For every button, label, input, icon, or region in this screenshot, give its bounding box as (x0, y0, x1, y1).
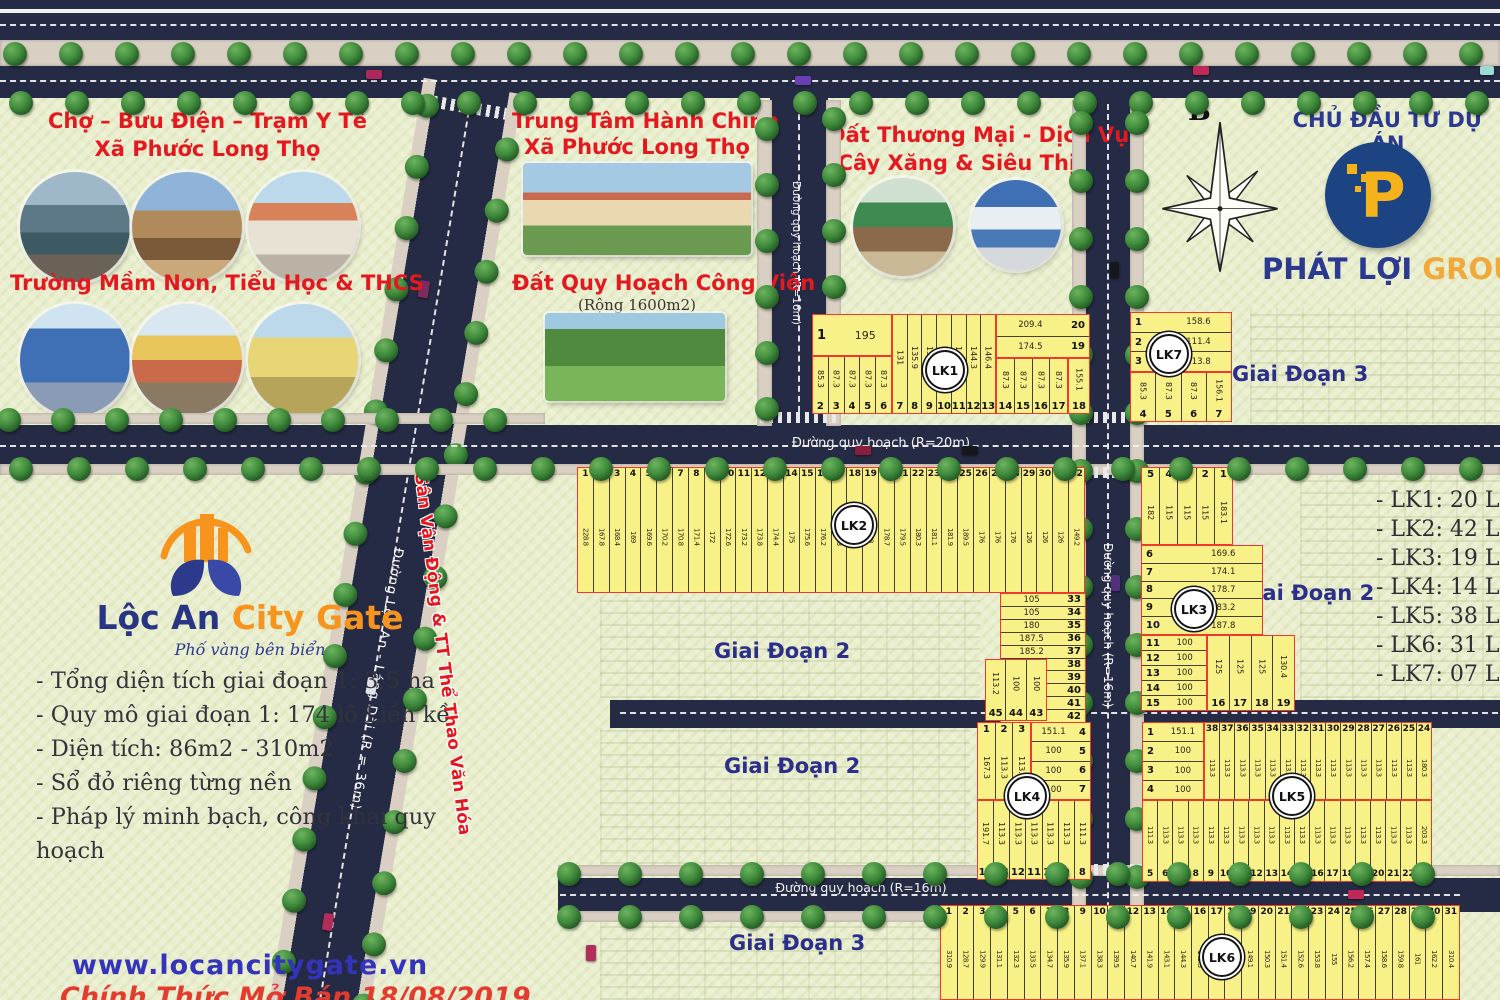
tree-icon (429, 408, 453, 432)
lot-lk7-7: 156.17 (1207, 373, 1231, 421)
block-lk2-lots: 113.2451004410043 (985, 659, 1047, 721)
photo-admin-center (523, 163, 751, 255)
commercial-title-line1: Đất Thương Mại - Dịch Vụ (828, 122, 1078, 148)
project-bullet: - Pháp lý minh bạch, công khai quy hoạch (36, 800, 506, 868)
tree-icon (452, 380, 480, 408)
tree-icon (357, 457, 381, 481)
lot-lk1-18: 155.118 (1069, 359, 1089, 413)
tree-icon (1285, 457, 1309, 481)
tree-icon (233, 91, 257, 115)
lot-lk5-3: 3100 (1143, 762, 1203, 781)
block-lk3-lots: 125161251712518130.419 (1207, 635, 1295, 711)
schools-title: Trường Mầm Non, Tiểu Học & THCS (10, 270, 405, 296)
tree-icon (731, 42, 755, 66)
tree-icon (1106, 905, 1130, 929)
photo-market (20, 172, 130, 282)
lot-lk3-16: 12516 (1208, 636, 1230, 710)
logo-pixel (1355, 186, 1361, 192)
lot-lk3-17: 12517 (1230, 636, 1252, 710)
lot-lk1-6: 87.36 (876, 357, 891, 413)
photo-clinic (248, 172, 358, 282)
lot-lk6-13: 13141.9 (1142, 906, 1159, 999)
lot-lk1-1: 1195 (813, 315, 891, 355)
lot-lk5-9: 113.39 (1204, 801, 1219, 881)
tree-icon (9, 457, 33, 481)
tree-icon (755, 229, 779, 253)
tree-icon (299, 457, 323, 481)
lot-lk3-14: 14100 (1142, 681, 1206, 696)
lot-lk2-13: 13174.4 (768, 468, 784, 592)
tree-icon (625, 91, 649, 115)
tree-icon (563, 42, 587, 66)
tree-icon (483, 197, 511, 225)
lot-lk2-12: 12173.8 (752, 468, 768, 592)
tree-icon (177, 91, 201, 115)
lot-lk5-25: 25113.3 (1402, 723, 1417, 799)
lot-lk1-2: 85.32 (813, 357, 829, 413)
photo-park (545, 313, 725, 401)
tree-icon (483, 408, 507, 432)
tree-icon (342, 520, 370, 548)
tree-icon (321, 408, 345, 432)
tree-icon (1069, 111, 1093, 135)
block-label-lk6: LK6 (1202, 937, 1242, 977)
tree-icon (647, 457, 671, 481)
logo-pixel (1347, 164, 1357, 174)
lot-lk2-16: 16176.2 (816, 468, 832, 592)
phase3-label-top: Giai Đoạn 3 (1232, 362, 1368, 386)
tree-icon (1409, 91, 1433, 115)
tree-icon (618, 862, 642, 886)
tree-icon (675, 42, 699, 66)
block-lk1-lots: 85.3287.3387.3487.3587.36 (812, 356, 892, 414)
project-logo-icon (146, 498, 266, 604)
tree-icon (1067, 42, 1091, 66)
lot-lk1-13: 146.413 (981, 315, 995, 413)
tree-icon (105, 408, 129, 432)
photo-secondary-school (248, 304, 358, 416)
block-label-lk3: LK3 (1174, 589, 1214, 629)
lot-lk5-2: 2100 (1143, 742, 1203, 761)
masterplan-poster: Đường Lộc An - Láng Dài (R = 36m) Sân Vậ… (0, 0, 1500, 1000)
admin-title-line2: Xã Phước Long Thọ (512, 134, 762, 160)
lot-lk3-19: 130.419 (1273, 636, 1294, 710)
block-lk1-lots: 209.420174.519 (996, 314, 1090, 358)
block-lk5-lots: 38113.337113.336113.335113.334113.333113… (1204, 722, 1432, 800)
tree-icon (67, 457, 91, 481)
developer-logo-letter: P (1360, 159, 1405, 232)
tree-icon (1343, 457, 1367, 481)
block-label-lk5: LK5 (1272, 776, 1312, 816)
phase2-label-lower: Giai Đoạn 2 (724, 754, 860, 778)
tree-icon (401, 91, 425, 115)
project-name-primary: Lộc An (96, 598, 231, 637)
lot-lk2-3: 3168.4 (610, 468, 626, 592)
road-centerline (560, 894, 1460, 896)
lot-lk2-6: 6170.2 (657, 468, 673, 592)
tree-icon (1459, 42, 1483, 66)
tree-icon (280, 887, 308, 915)
tree-icon (955, 42, 979, 66)
project-bullet: - Tổng diện tích giai đoạn 1: 3,5 ha (36, 664, 506, 698)
tree-icon (65, 91, 89, 115)
phase3-label-bottom: Giai Đoạn 3 (729, 931, 865, 955)
tree-icon (159, 408, 183, 432)
lot-lk2-33: 10533 (1001, 594, 1085, 607)
lot-lk1-15: 87.315 (1015, 359, 1033, 413)
tree-icon (755, 341, 779, 365)
lot-lk3-1: 1183.1 (1215, 468, 1232, 544)
photo-post-office (132, 172, 242, 282)
lot-lk3-11: 11100 (1142, 636, 1206, 651)
car-icon (586, 945, 596, 961)
lot-lk7-1: 1158.6 (1131, 313, 1231, 333)
logo-pixel (1361, 174, 1369, 182)
lot-lk4-5: 1005 (1032, 742, 1090, 761)
lot-lk5-35: 35113.3 (1250, 723, 1265, 799)
lot-lk2-36: 187.536 (1001, 633, 1085, 646)
lot-lk7-6: 87.36 (1182, 373, 1207, 421)
project-name: Lộc An City Gate (40, 598, 460, 637)
lot-lk2-23: 23181.1 (927, 468, 943, 592)
lot-lk1-19: 174.519 (997, 337, 1089, 358)
tree-icon (755, 397, 779, 421)
legend-item: - LK6: 31 Lô (1376, 631, 1500, 660)
lot-lk5-24: 24180.3 (1417, 723, 1431, 799)
lot-lk2-2: 2167.8 (594, 468, 610, 592)
lot-lk2-44: 10044 (1006, 660, 1026, 720)
road-label-r16-left: Đường quy hoạch (R=16m) (789, 178, 803, 328)
tree-icon (59, 42, 83, 66)
photo-kindergarten (20, 304, 130, 416)
tree-icon (3, 42, 27, 66)
lot-lk5-8: 113.38 (1189, 801, 1204, 881)
lot-lk2-30: 30126 (1037, 468, 1053, 592)
tree-icon (822, 107, 846, 131)
lot-lk1-5: 87.35 (860, 357, 876, 413)
tree-icon (793, 91, 817, 115)
photo-primary-school (132, 304, 242, 416)
tree-icon (1297, 91, 1321, 115)
lot-lk7-4: 85.34 (1131, 373, 1156, 421)
road-top-1 (0, 0, 1500, 40)
phase-zone-2-lower (600, 728, 970, 876)
lot-lk5-27: 27113.3 (1372, 723, 1387, 799)
tree-icon (171, 42, 195, 66)
lot-lk2-26: 26176 (974, 468, 990, 592)
phase-zone-3-bottom (600, 916, 940, 1000)
tree-icon (1289, 905, 1313, 929)
lot-lk3-12: 12100 (1142, 651, 1206, 666)
lot-lk6-2: 2128.7 (958, 906, 975, 999)
tree-icon (241, 457, 265, 481)
commercial-title-line2: (Cây Xăng & Siêu Thị) (828, 150, 1078, 176)
tree-icon (1167, 862, 1191, 886)
tree-icon (1111, 457, 1135, 481)
block-lk7-lots: 85.3487.3587.36156.17 (1130, 372, 1232, 422)
tree-icon (462, 319, 490, 347)
tree-icon (1235, 42, 1259, 66)
road-centerline (0, 80, 1500, 82)
lot-lk4-8: 111.38 (1075, 801, 1090, 879)
lot-lk1-20: 209.420 (997, 315, 1089, 337)
market-title-line2: Xã Phước Long Thọ (10, 136, 405, 162)
lot-lk6-31: 31310.4 (1443, 906, 1459, 999)
tree-icon (821, 457, 845, 481)
legend-item: - LK2: 42 Lô (1376, 515, 1500, 544)
tree-icon (619, 42, 643, 66)
lot-lk5-5: 111.35 (1143, 801, 1158, 881)
car-icon (795, 76, 811, 85)
tree-icon (1017, 91, 1041, 115)
tree-icon (1167, 905, 1191, 929)
tree-icon (375, 408, 399, 432)
road-centerline (0, 445, 1500, 447)
car-icon (1480, 66, 1494, 75)
tree-icon (1411, 905, 1435, 929)
tree-icon (1350, 862, 1374, 886)
project-bullet: - Quy mô giai đoạn 1: 174 lô Liền kề (36, 698, 506, 732)
lot-lk3-2: 2115 (1197, 468, 1215, 544)
tree-icon (879, 457, 903, 481)
lot-lk2-20: 20178.7 (879, 468, 895, 592)
lot-lk1-7: 1317 (893, 315, 908, 413)
tree-icon (345, 91, 369, 115)
lot-lk1-16: 87.316 (1033, 359, 1051, 413)
tree-icon (849, 91, 873, 115)
tree-icon (1125, 111, 1149, 135)
lot-lk2-4: 4169 (626, 468, 642, 592)
developer-name-primary: PHÁT LỢI (1262, 252, 1412, 286)
tree-icon (899, 42, 923, 66)
tree-icon (1289, 862, 1313, 886)
block-lk1-lots: 1195 (812, 314, 892, 356)
project-name-secondary: City Gate (232, 598, 404, 637)
road-centerline (798, 104, 800, 422)
car-icon (1348, 890, 1364, 899)
tree-icon (763, 457, 787, 481)
tree-icon (1227, 457, 1251, 481)
tree-icon (557, 862, 581, 886)
tree-icon (740, 905, 764, 929)
tree-icon (740, 862, 764, 886)
tree-icon (473, 457, 497, 481)
tree-icon (1353, 91, 1377, 115)
tree-icon (569, 91, 593, 115)
tree-icon (1241, 91, 1265, 115)
lot-lk3-15: 15100 (1142, 696, 1206, 710)
tree-icon (125, 457, 149, 481)
lot-lk1-17: 87.317 (1050, 359, 1067, 413)
tree-icon (1069, 169, 1093, 193)
lot-lk5-30: 30113.3 (1326, 723, 1341, 799)
lot-lk1-8: 135.98 (908, 315, 923, 413)
lot-lk1-3: 87.33 (829, 357, 845, 413)
tree-icon (1228, 905, 1252, 929)
lot-lk2-37: 185.237 (1001, 646, 1085, 659)
tree-icon (755, 117, 779, 141)
lot-lk2-5: 5169.6 (641, 468, 657, 592)
lot-lk2-25: 25189.5 (958, 468, 974, 592)
lot-lk5-26: 26113.3 (1387, 723, 1402, 799)
developer-logo-icon: P (1325, 142, 1431, 248)
car-icon (1111, 575, 1120, 591)
tree-icon (370, 869, 398, 897)
lot-lk1-12: 144.312 (967, 315, 982, 413)
lot-lk6-9: 9137.1 (1075, 906, 1092, 999)
block-label-lk1: LK1 (925, 350, 965, 390)
tree-icon (681, 91, 705, 115)
tree-icon (1185, 91, 1209, 115)
legend-item: - LK4: 14 Lo (1376, 573, 1500, 602)
tree-icon (213, 408, 237, 432)
lot-lk5-16: 113.316 (1310, 801, 1325, 881)
tree-icon (451, 42, 475, 66)
tree-icon (679, 905, 703, 929)
project-bullets: - Tổng diện tích giai đoạn 1: 3,5 ha- Qu… (36, 664, 506, 868)
website-link[interactable]: www.locancitygate.vn (72, 950, 428, 981)
tree-icon (393, 214, 421, 242)
block-lk6-lots: 1310.92128.73129.94131.15132.36133.57134… (940, 905, 1460, 1000)
car-icon (1110, 262, 1119, 278)
block-legend: - LK1: 20 Lô- LK2: 42 Lô- LK3: 19 Lô- LK… (1376, 486, 1500, 689)
legend-item: - LK1: 20 Lô (1376, 486, 1500, 515)
tree-icon (557, 905, 581, 929)
block-lk5-lots: 1151.1210031004100 (1142, 722, 1204, 800)
tree-icon (115, 42, 139, 66)
block-lk1-lots: 87.31487.31587.31687.317 (996, 358, 1068, 414)
car-icon (855, 446, 871, 455)
tree-icon (862, 862, 886, 886)
park-title: Đất Quy Hoạch Công Viên (512, 270, 762, 296)
tree-icon (227, 42, 251, 66)
lot-lk2-28: 28176 (1006, 468, 1022, 592)
photo-gas-station (971, 180, 1061, 270)
tree-icon (1291, 42, 1315, 66)
lot-lk2-15: 15175.6 (800, 468, 816, 592)
lot-lk2-35: 18035 (1001, 620, 1085, 633)
lot-lk5-1: 1151.1 (1143, 723, 1203, 742)
tree-icon (1347, 42, 1371, 66)
tree-icon (372, 336, 400, 364)
lot-lk2-45: 113.245 (986, 660, 1006, 720)
tree-icon (1125, 285, 1149, 309)
lot-lk5-31: 31113.3 (1311, 723, 1326, 799)
tree-icon (862, 905, 886, 929)
tree-icon (473, 258, 501, 286)
tree-icon (843, 42, 867, 66)
tree-icon (755, 285, 779, 309)
park-note: (Rộng 1600m2) (512, 296, 762, 314)
lot-lk4-6: 1006 (1032, 762, 1090, 781)
tree-icon (705, 457, 729, 481)
tree-icon (801, 905, 825, 929)
block-label-lk4: LK4 (1007, 776, 1047, 816)
lot-lk6-24: 24155 (1326, 906, 1343, 999)
lot-lk5-36: 36113.3 (1235, 723, 1250, 799)
lot-lk5-29: 29113.3 (1341, 723, 1356, 799)
car-icon (962, 446, 978, 455)
lot-lk3-7: 7174.1 (1142, 564, 1262, 582)
lot-lk2-27: 27176 (990, 468, 1006, 592)
lot-lk4-4: 151.14 (1032, 723, 1090, 742)
tree-icon (51, 408, 75, 432)
lot-lk2-11: 11173.2 (736, 468, 752, 592)
lot-lk2-43: 10043 (1027, 660, 1046, 720)
tree-icon (1123, 42, 1147, 66)
tree-icon (1069, 285, 1093, 309)
project-bullet: - Sổ đỏ riêng từng nền (36, 766, 506, 800)
lot-lk3-18: 12518 (1252, 636, 1274, 710)
lot-lk3-13: 13100 (1142, 666, 1206, 681)
tree-icon (267, 408, 291, 432)
lot-lk2-31: 31126 (1053, 468, 1069, 592)
opening-announcement: Chính Thức Mở Bán 18/08/2019 (60, 982, 531, 1000)
lot-lk5-13: 113.313 (1265, 801, 1280, 881)
road-line (0, 9, 1500, 13)
tree-icon (121, 91, 145, 115)
road-centerline (0, 24, 1500, 26)
phase2-label-center: Giai Đoạn 2 (714, 639, 850, 663)
tree-icon (1045, 905, 1069, 929)
project-bullet: - Diện tích: 86m2 - 310m2 (36, 732, 506, 766)
road-label-r16-bottom: Đường quy hoạch (R=16m) (740, 880, 982, 895)
tree-icon (923, 862, 947, 886)
lot-lk5-37: 37113.3 (1220, 723, 1235, 799)
lot-lk3-5: 5182 (1142, 468, 1160, 544)
lot-lk2-14: 14175 (784, 468, 800, 592)
legend-item: - LK7: 07 Lô (1376, 660, 1500, 689)
lot-lk5-17: 113.317 (1325, 801, 1340, 881)
photo-supermarket (853, 178, 953, 276)
tree-icon (1401, 457, 1425, 481)
developer-name-secondary: GROUP (1422, 252, 1500, 286)
lot-lk1-4: 87.34 (845, 357, 861, 413)
tree-icon (822, 219, 846, 243)
tree-icon (1106, 862, 1130, 886)
lot-lk3-6: 6169.6 (1142, 546, 1262, 564)
lot-lk2-22: 22180.3 (911, 468, 927, 592)
block-lk1-lots: 155.118 (1068, 358, 1090, 414)
car-icon (366, 70, 382, 79)
tree-icon (1459, 457, 1483, 481)
tree-icon (1228, 862, 1252, 886)
tree-icon (755, 173, 779, 197)
legend-item: - LK3: 19 Lô (1376, 544, 1500, 573)
lot-lk2-32: 32149.2 (1069, 468, 1084, 592)
lot-lk6-20: 20150.3 (1259, 906, 1276, 999)
tree-icon (679, 862, 703, 886)
lot-lk6-27: 27158.6 (1376, 906, 1393, 999)
tree-icon (457, 91, 481, 115)
block-lk3-lots: 1110012100131001410015100 (1141, 635, 1207, 711)
tree-icon (984, 862, 1008, 886)
tree-icon (737, 91, 761, 115)
lot-lk6-28: 28159.8 (1393, 906, 1410, 999)
tree-icon (923, 905, 947, 929)
lot-lk2-24: 24181.9 (942, 468, 958, 592)
tree-icon (395, 42, 419, 66)
lot-lk2-10: 10172.6 (721, 468, 737, 592)
project-tagline: Phố vàng bên biển (40, 640, 460, 659)
tree-icon (507, 42, 531, 66)
tree-icon (1053, 457, 1077, 481)
lot-lk5-28: 28113.3 (1356, 723, 1371, 799)
tree-icon (9, 91, 33, 115)
tree-icon (339, 42, 363, 66)
car-icon (1193, 66, 1209, 75)
lot-lk6-6: 6133.5 (1025, 906, 1042, 999)
